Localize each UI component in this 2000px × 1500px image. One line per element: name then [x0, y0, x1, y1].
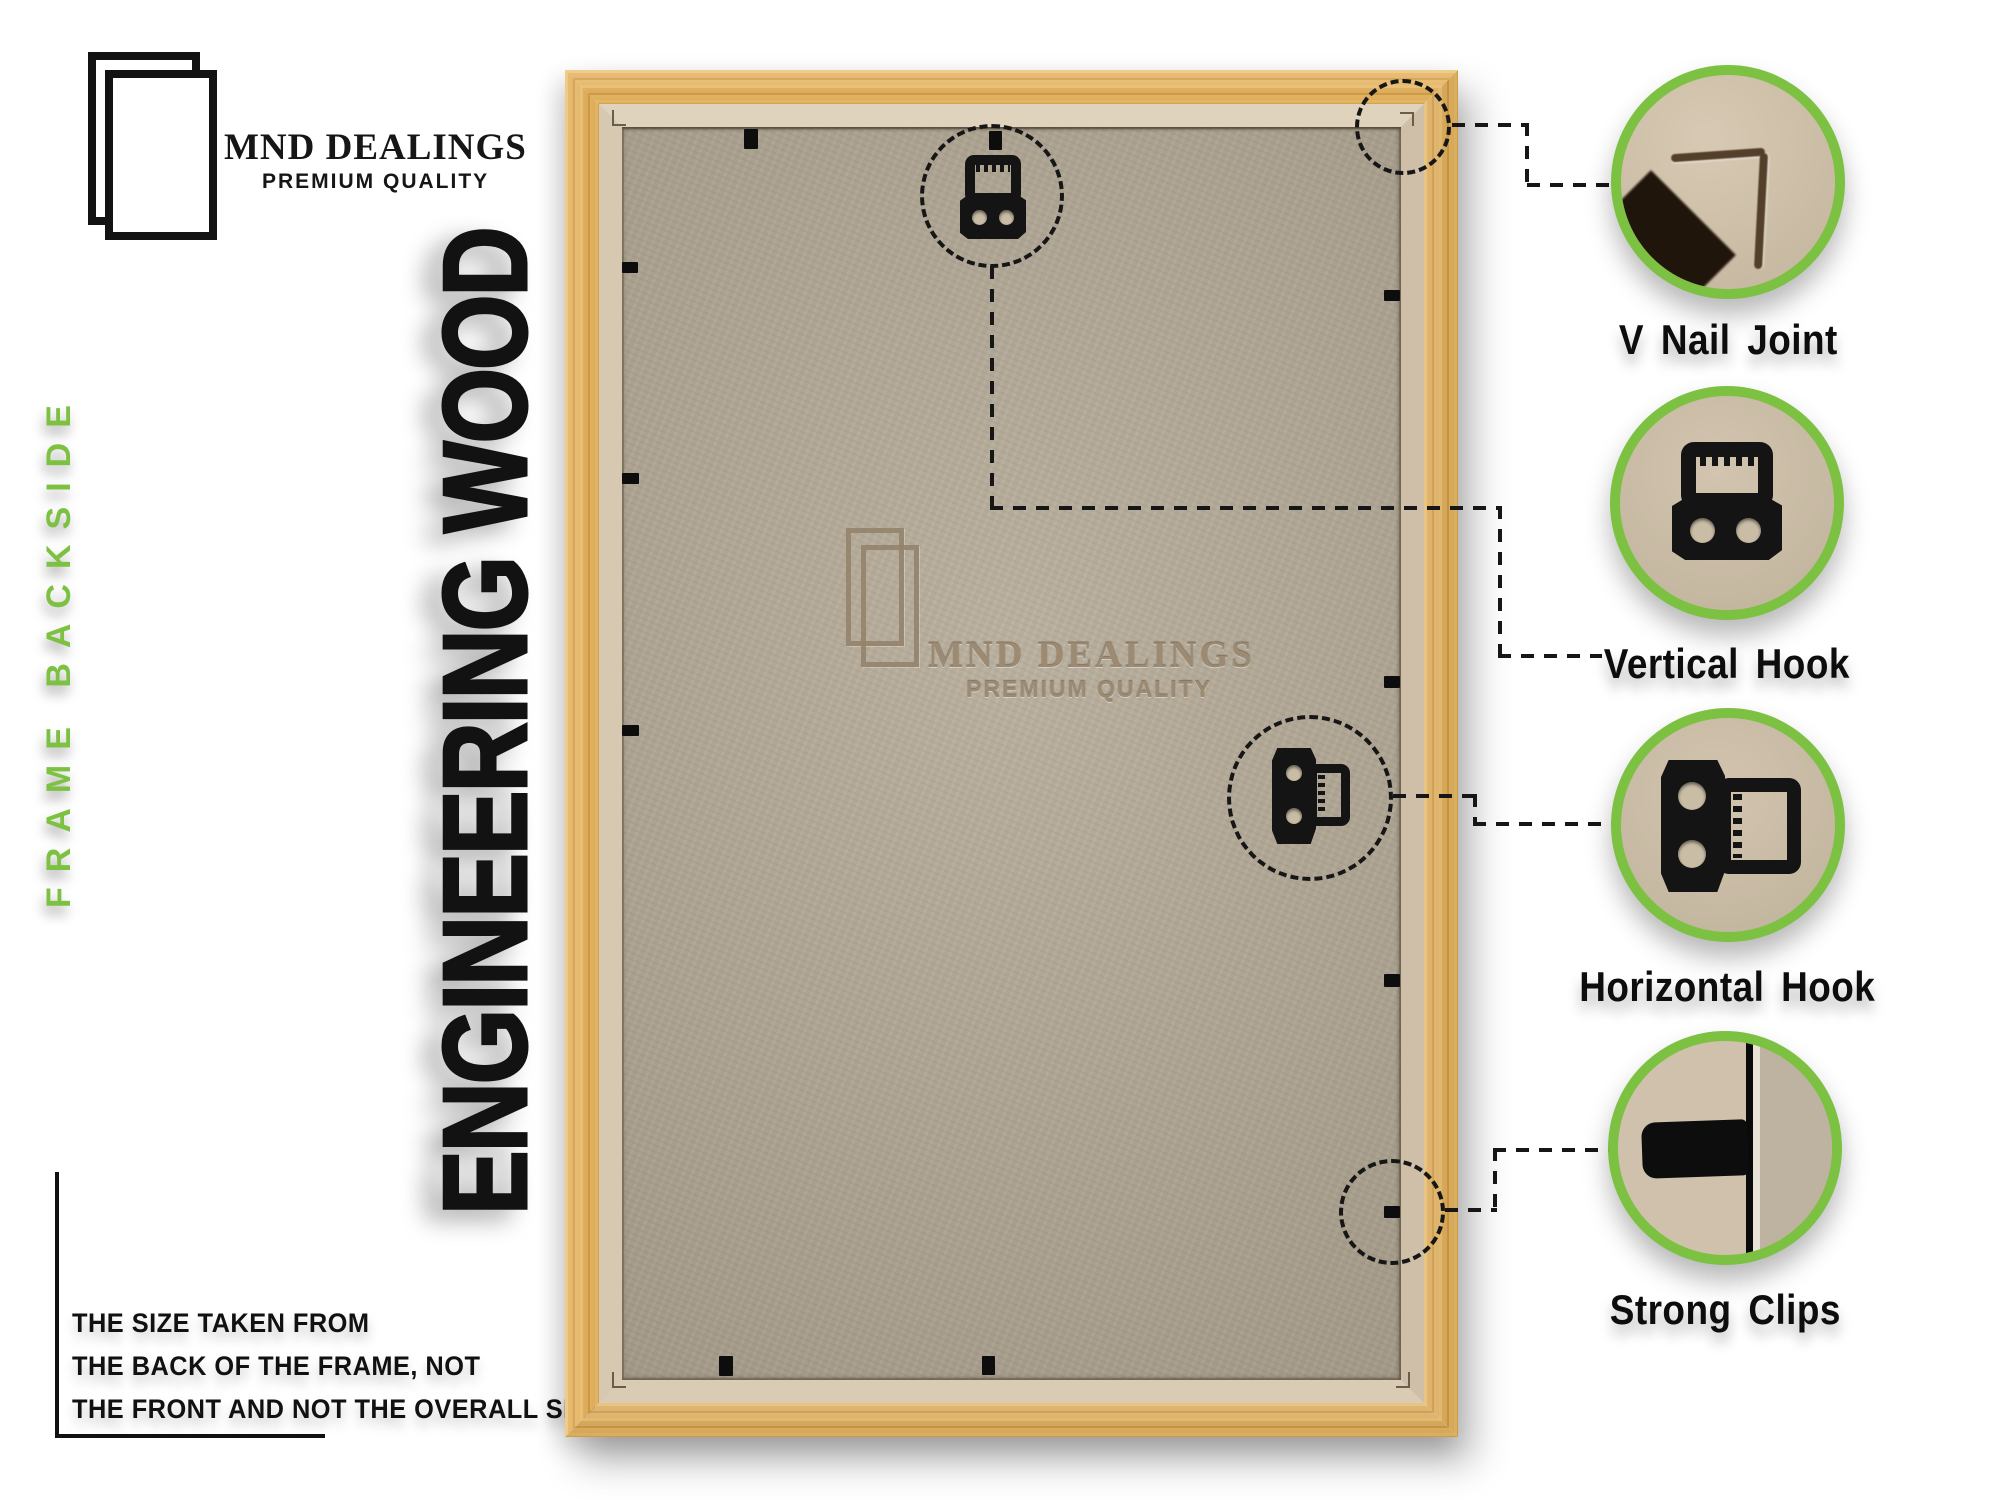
note-connector-vertical-line — [55, 1172, 59, 1438]
hook-hole — [1690, 518, 1715, 543]
size-note: THE SIZE TAKEN FROM THE BACK OF THE FRAM… — [72, 1302, 612, 1431]
frame-wood-border-left — [565, 70, 599, 1437]
corner-gap-shadow — [1621, 170, 1736, 289]
vertical-hook-dashed-circle — [920, 124, 1064, 268]
horizontal-hook-dashed-circle — [1227, 715, 1393, 881]
metal-clip — [1384, 290, 1400, 301]
watermark-name: MND DEALINGS — [928, 634, 1255, 677]
metal-clip — [982, 1356, 995, 1375]
metal-clip — [622, 725, 639, 736]
strong-clip-photo — [1618, 1041, 1832, 1255]
corner-mark — [612, 1386, 626, 1388]
callout-label-text: V Nail Joint — [1619, 316, 1838, 364]
frame-wood-edge — [1760, 1041, 1832, 1255]
connector-v-nail-joint — [1527, 183, 1613, 187]
callout-circle-v-nail-joint — [1611, 65, 1845, 299]
callout-label-text: Vertical Hook — [1604, 640, 1850, 688]
v-nail-joint-photo — [1621, 75, 1835, 289]
frame-backside-label: FRAME BACKSIDE — [36, 318, 82, 908]
v-groove-horizontal — [1671, 148, 1765, 163]
callout-circle-strong-clips — [1608, 1031, 1842, 1265]
connector-v-nail-joint — [1525, 123, 1529, 187]
hook-teeth — [1733, 794, 1742, 858]
frame-gap-highlight — [1753, 1041, 1760, 1255]
v-groove-vertical — [1754, 153, 1768, 269]
callout-label-text: Horizontal Hook — [1579, 963, 1875, 1011]
connector-strong-clips — [1493, 1148, 1615, 1152]
watermark-tagline: PREMIUM QUALITY — [966, 676, 1212, 703]
frame-wood-border-bottom — [565, 1403, 1458, 1437]
callout-circle-horizontal-hook — [1611, 708, 1845, 942]
note-connector-horizontal-line — [55, 1434, 325, 1438]
size-note-line-3: THE FRONT AND NOT THE OVERALL SIZE. — [72, 1388, 612, 1431]
connector-vertical-hook — [990, 266, 994, 510]
connector-strong-clips — [1445, 1208, 1497, 1212]
metal-clip — [1384, 974, 1400, 987]
connector-horizontal-hook — [1473, 822, 1613, 826]
horizontal-hook-photo — [1621, 718, 1835, 932]
metal-clip — [622, 262, 638, 273]
callout-circle-vertical-hook — [1610, 386, 1844, 620]
corner-mark — [612, 124, 626, 126]
callout-label-horizontal-hook: Horizontal Hook — [1502, 963, 1952, 1011]
hook-plate — [1661, 760, 1725, 892]
size-note-line-2: THE BACK OF THE FRAME, NOT — [72, 1345, 612, 1388]
engineering-wood-heading-wrap: ENGINEERING WOOD — [442, 210, 554, 1215]
vertical-hook-photo — [1620, 396, 1834, 610]
connector-horizontal-hook — [1393, 794, 1477, 798]
metal-clip — [719, 1356, 733, 1376]
hook-plate — [1672, 498, 1782, 560]
callout-label-vertical-hook: Vertical Hook — [1527, 640, 1927, 688]
brand-logo-frame-front-icon — [105, 70, 217, 240]
v-nail-joint-dashed-circle — [1355, 79, 1451, 175]
metal-clip — [744, 129, 758, 149]
brand-tagline: PREMIUM QUALITY — [262, 170, 489, 194]
callout-label-text: Strong Clips — [1609, 1286, 1840, 1334]
metal-clip — [1384, 676, 1400, 688]
watermark-logo-frame-front-icon — [861, 545, 919, 667]
strong-clip-graphic — [1641, 1119, 1749, 1179]
connector-vertical-hook — [990, 506, 1502, 510]
horizontal-hook-graphic — [1661, 760, 1803, 892]
callout-label-v-nail-joint: V Nail Joint — [1528, 316, 1928, 364]
callout-label-strong-clips: Strong Clips — [1525, 1286, 1925, 1334]
hook-teeth — [1700, 457, 1754, 466]
vertical-hook-graphic — [1672, 442, 1782, 560]
hook-hole — [1678, 782, 1706, 810]
frame-wood-border-top — [565, 70, 1458, 104]
corner-mark — [1396, 1386, 1410, 1388]
product-infographic: MND DEALINGS PREMIUM QUALITY FRAME BACKS… — [0, 0, 2000, 1500]
engineering-wood-heading: ENGINEERING WOOD — [417, 228, 554, 1215]
brand-name: MND DEALINGS — [224, 126, 527, 169]
strong-clip-dashed-circle — [1339, 1159, 1445, 1265]
metal-clip — [622, 473, 639, 484]
size-note-line-1: THE SIZE TAKEN FROM — [72, 1302, 612, 1345]
hook-loop — [1717, 778, 1801, 874]
hook-hole — [1736, 518, 1761, 543]
hook-hole — [1678, 840, 1706, 868]
connector-strong-clips — [1493, 1148, 1497, 1212]
connector-v-nail-joint — [1452, 123, 1527, 127]
connector-vertical-hook — [1498, 506, 1502, 658]
